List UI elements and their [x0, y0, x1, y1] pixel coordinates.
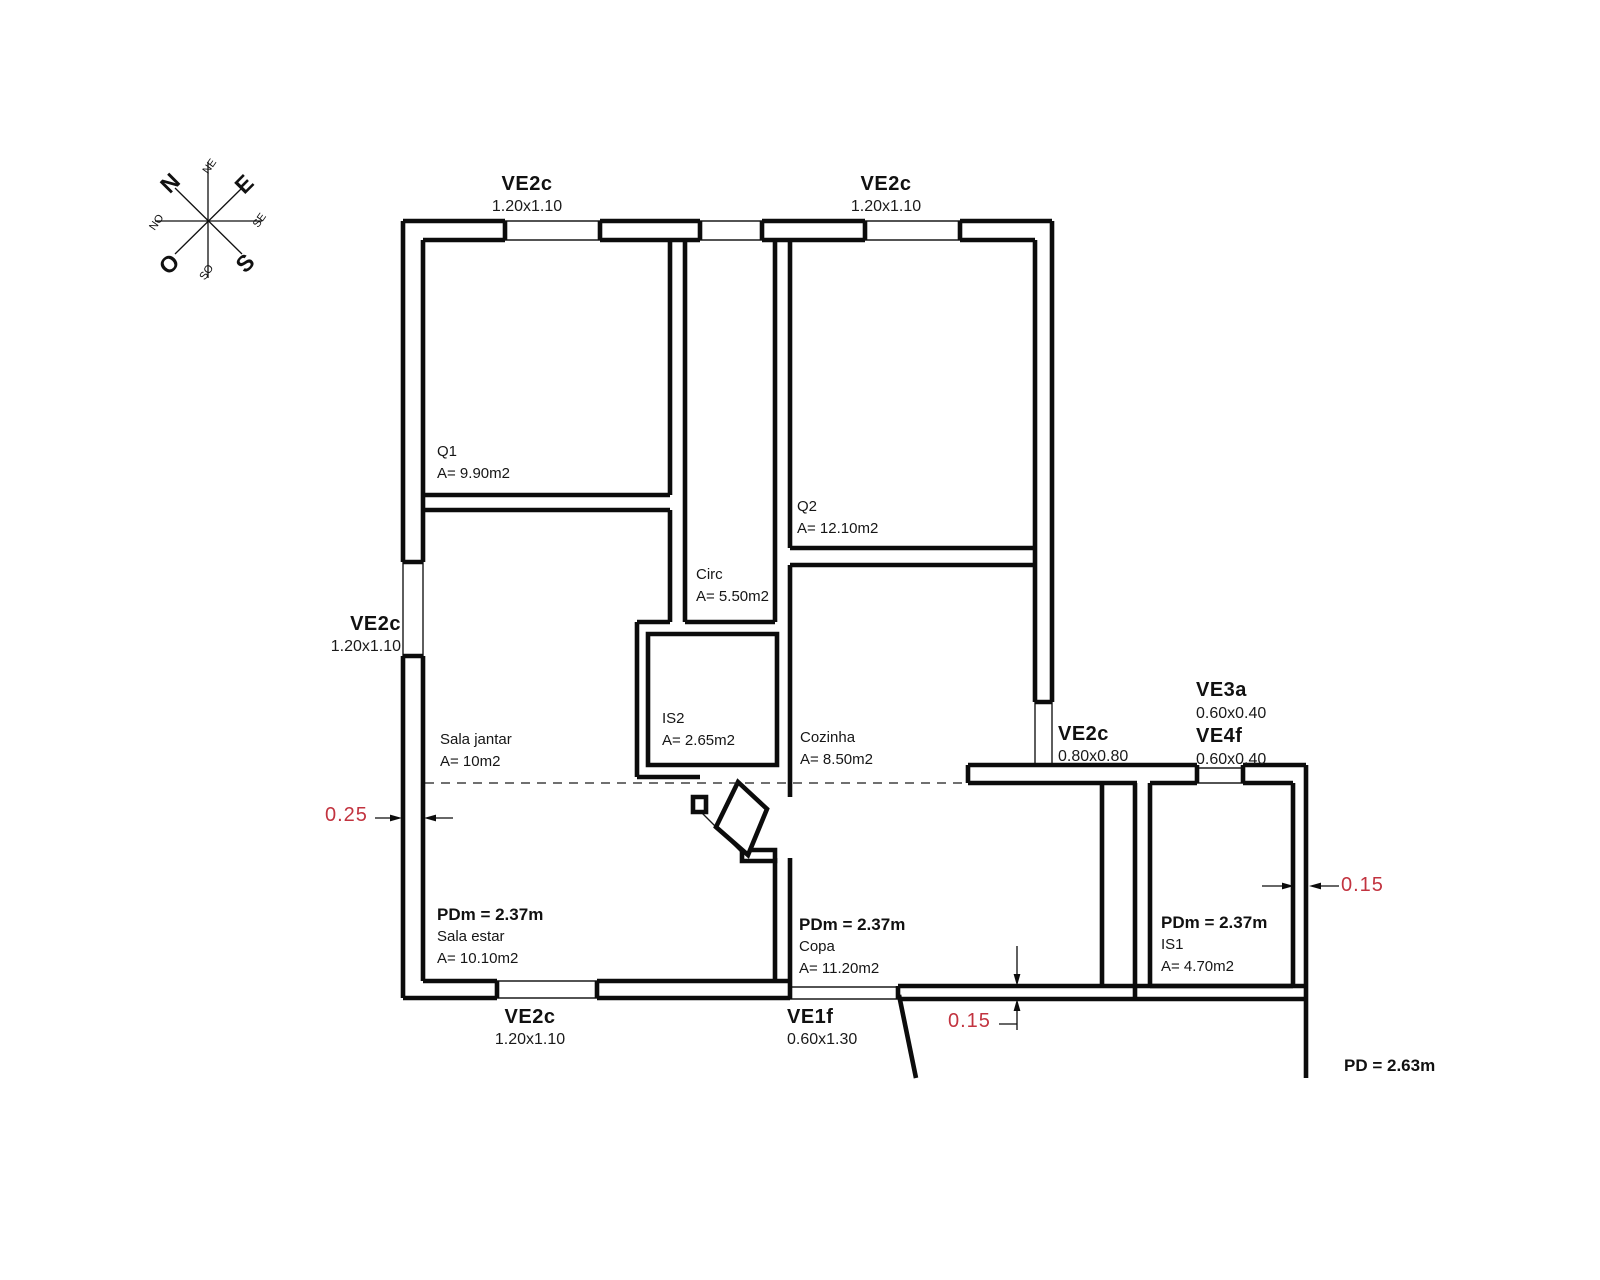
label-room-is1: PDm = 2.37m IS1 A= 4.70m2	[1161, 911, 1267, 978]
room-name: Sala jantar	[440, 729, 512, 751]
label-room-circ: Circ A= 5.50m2	[696, 564, 769, 608]
compass-ne: NE	[201, 157, 220, 176]
window-size: 1.20x1.10	[447, 197, 607, 217]
room-area: A= 2.65m2	[662, 730, 735, 752]
window-size: 1.20x1.10	[806, 197, 966, 217]
compass-e: E	[229, 169, 258, 198]
label-windows-right-stack: VE3a 0.60x0.40 VE4f 0.60x0.40	[1196, 679, 1266, 771]
room-ceiling-height: PDm = 2.37m	[1161, 911, 1267, 934]
room-name: Circ	[696, 564, 769, 586]
floor-plan-drawing: N E O S NE SE SO NO	[0, 0, 1600, 1280]
ceiling-height-note: PD = 2.63m	[1344, 1056, 1435, 1076]
window-lines	[403, 221, 1243, 999]
label-room-cozinha: Cozinha A= 8.50m2	[800, 727, 873, 771]
room-name: Copa	[799, 936, 905, 958]
room-area: A= 10m2	[440, 751, 512, 773]
room-area: A= 11.20m2	[799, 958, 905, 980]
label-room-sala-jantar: Sala jantar A= 10m2	[440, 729, 512, 773]
window-code: VE2c	[450, 1005, 610, 1030]
compass-so: SO	[197, 262, 216, 282]
window-size: 1.20x1.10	[450, 1030, 610, 1050]
label-window-top-right: VE2c 1.20x1.10	[806, 172, 966, 217]
label-room-q1: Q1 A= 9.90m2	[437, 441, 510, 485]
exterior-door-leaf	[899, 995, 916, 1078]
room-name: Q2	[797, 496, 878, 518]
room-name: IS1	[1161, 934, 1267, 956]
dim-right-wall-thickness: 0.15	[1341, 874, 1384, 897]
label-window-kitchen-right: VE2c 0.80x0.80	[1058, 722, 1128, 767]
label-room-is2: IS2 A= 2.65m2	[662, 708, 735, 752]
window-code: VE2c	[447, 172, 607, 197]
window-code: VE2c	[241, 612, 401, 637]
room-area: A= 9.90m2	[437, 463, 510, 485]
room-area: A= 5.50m2	[696, 586, 769, 608]
label-room-q2: Q2 A= 12.10m2	[797, 496, 878, 540]
window-code: VE4f	[1196, 725, 1266, 748]
dim-bottom-wall-thickness: 0.15	[948, 1010, 991, 1033]
room-area: A= 12.10m2	[797, 518, 878, 540]
compass-no: NO	[147, 212, 167, 233]
label-window-top-left: VE2c 1.20x1.10	[447, 172, 607, 217]
room-area: A= 10.10m2	[437, 948, 543, 970]
room-ceiling-height: PDm = 2.37m	[799, 913, 905, 936]
compass-se: SE	[251, 211, 269, 230]
dim-left-wall-thickness: 0.25	[325, 804, 368, 827]
window-code: VE2c	[1058, 722, 1128, 747]
room-ceiling-height: PDm = 2.37m	[437, 903, 543, 926]
window-size: 0.60x0.40	[1196, 702, 1266, 725]
door-hinge-jamb	[693, 797, 706, 812]
label-door-window-ve1f: VE1f 0.60x1.30	[787, 1005, 857, 1050]
window-size: 0.60x0.40	[1196, 748, 1266, 771]
label-window-left: VE2c 1.20x1.10	[241, 612, 401, 657]
window-size: 1.20x1.10	[241, 637, 401, 657]
room-name: Sala estar	[437, 926, 543, 948]
window-code: VE1f	[787, 1005, 857, 1030]
window-code: VE3a	[1196, 679, 1266, 702]
room-name: Q1	[437, 441, 510, 463]
room-area: A= 4.70m2	[1161, 956, 1267, 978]
room-name: Cozinha	[800, 727, 873, 749]
door-leaf	[716, 782, 767, 855]
window-size: 0.60x1.30	[787, 1030, 857, 1050]
compass-s: S	[230, 248, 259, 277]
window-code: VE2c	[806, 172, 966, 197]
label-window-bottom-left: VE2c 1.20x1.10	[450, 1005, 610, 1050]
floor-plan-page: N E O S NE SE SO NO	[0, 0, 1600, 1280]
label-room-copa: PDm = 2.37m Copa A= 11.20m2	[799, 913, 905, 980]
compass-o: O	[153, 248, 184, 279]
window-size: 0.80x0.80	[1058, 747, 1128, 767]
room-name: IS2	[662, 708, 735, 730]
interior-door	[693, 782, 775, 861]
label-room-sala-estar: PDm = 2.37m Sala estar A= 10.10m2	[437, 903, 543, 970]
room-area: A= 8.50m2	[800, 749, 873, 771]
